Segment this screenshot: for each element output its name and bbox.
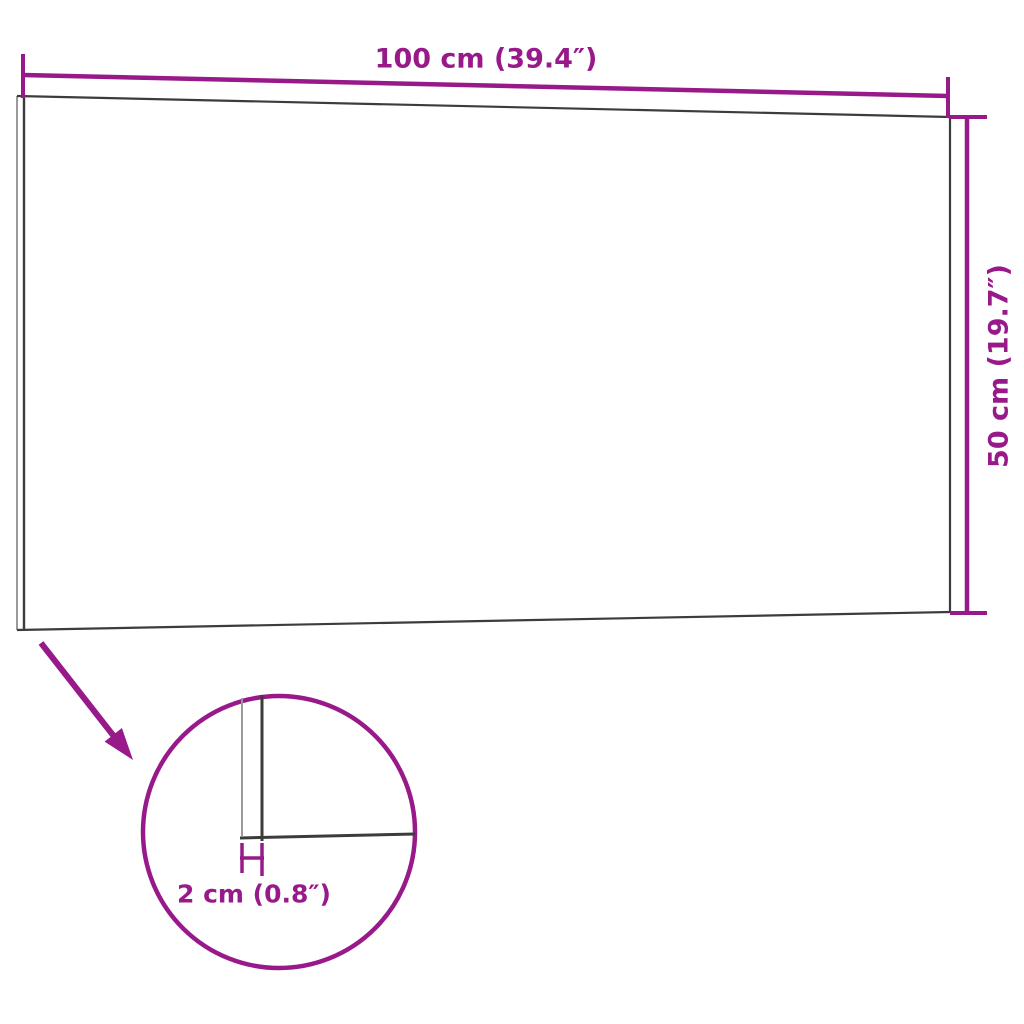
panel-outline [17,96,950,630]
thickness-detail [143,695,415,968]
dimension-linework [0,0,1024,1024]
width-dimension-label: 100 cm (39.4″) [375,44,598,75]
panel-top-edge [17,96,950,117]
thickness-dimension-label: 2 cm (0.8″) [177,880,331,909]
detail-arrow-shaft [41,643,116,739]
product-dimension-diagram: 100 cm (39.4″) 50 cm (19.7″) 2 cm (0.8″) [0,0,1024,1024]
detail-arrow [41,643,133,760]
height-dimension-line [950,115,987,615]
panel-bottom-edge [17,612,950,630]
magnifier-circle [143,696,415,968]
width-dimension-rule [23,75,948,96]
height-dimension-label: 50 cm (19.7″) [984,264,1015,468]
